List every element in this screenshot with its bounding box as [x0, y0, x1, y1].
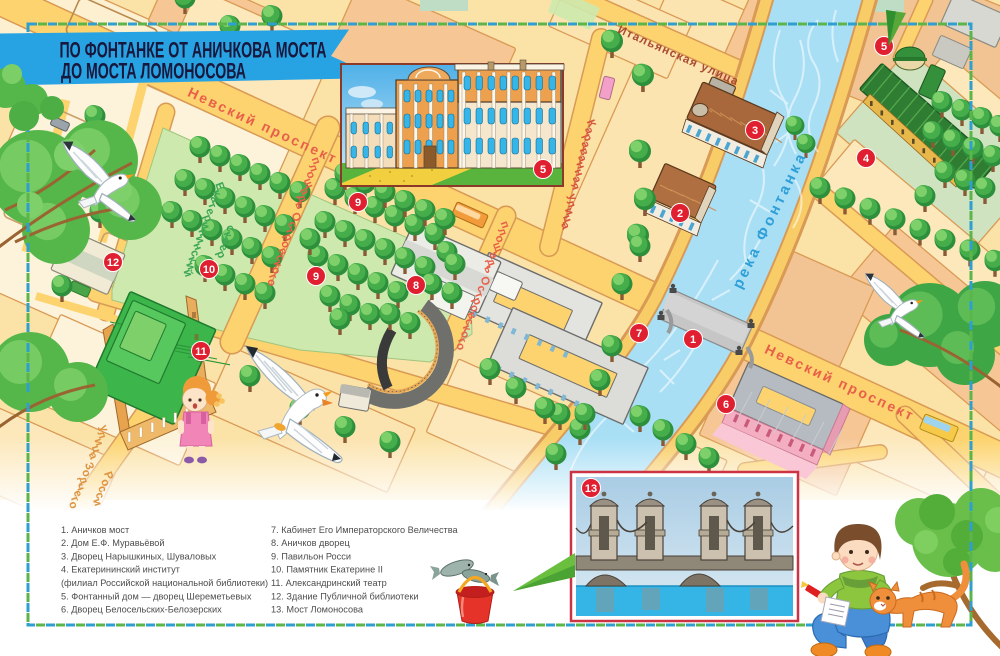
svg-text:2. Дом Е.Ф. Муравьёвой: 2. Дом Е.Ф. Муравьёвой	[61, 538, 165, 548]
svg-text:3: 3	[752, 125, 758, 137]
svg-text:7: 7	[636, 328, 642, 340]
svg-text:9: 9	[355, 197, 361, 209]
svg-text:12: 12	[107, 257, 119, 269]
svg-text:8: 8	[413, 280, 419, 292]
svg-text:9: 9	[313, 271, 319, 283]
svg-text:11: 11	[195, 346, 207, 358]
svg-text:ДО МОСТА ЛОМОНОСОВА: ДО МОСТА ЛОМОНОСОВА	[61, 59, 246, 84]
svg-text:1. Аничков мост: 1. Аничков мост	[61, 525, 130, 535]
svg-text:(филиал Российской национально: (филиал Российской национальной библиоте…	[61, 578, 268, 588]
svg-text:3. Дворец Нарышкиных, Шуваловы: 3. Дворец Нарышкиных, Шуваловых	[61, 551, 217, 561]
svg-text:1: 1	[690, 334, 696, 346]
svg-text:8. Аничков дворец: 8. Аничков дворец	[271, 538, 350, 548]
svg-text:4. Екатерининский институт: 4. Екатерининский институт	[61, 565, 181, 575]
svg-text:9. Павильон Росси: 9. Павильон Росси	[271, 551, 351, 561]
svg-text:4: 4	[863, 153, 870, 165]
svg-text:12. Здание Публичной библиотек: 12. Здание Публичной библиотеки	[271, 591, 419, 601]
svg-text:7. Кабинет Его Императорского: 7. Кабинет Его Императорского Величества	[271, 525, 459, 535]
svg-text:10. Памятник Екатерине II: 10. Памятник Екатерине II	[271, 565, 383, 575]
svg-text:6: 6	[723, 399, 729, 411]
svg-text:13. Мост Ломоносова: 13. Мост Ломоносова	[271, 605, 364, 615]
svg-text:2: 2	[677, 208, 683, 220]
svg-text:11. Александринский театр: 11. Александринский театр	[271, 578, 387, 588]
svg-text:10: 10	[203, 264, 215, 276]
svg-text:5: 5	[881, 41, 887, 53]
svg-text:5. Фонтанный дом — дворец Шере: 5. Фонтанный дом — дворец Шереметьевых	[61, 591, 252, 601]
svg-text:6. Дворец Белосельских-Белозер: 6. Дворец Белосельских-Белозерских	[61, 605, 222, 615]
svg-text:13: 13	[585, 483, 597, 495]
svg-text:5: 5	[540, 164, 546, 176]
